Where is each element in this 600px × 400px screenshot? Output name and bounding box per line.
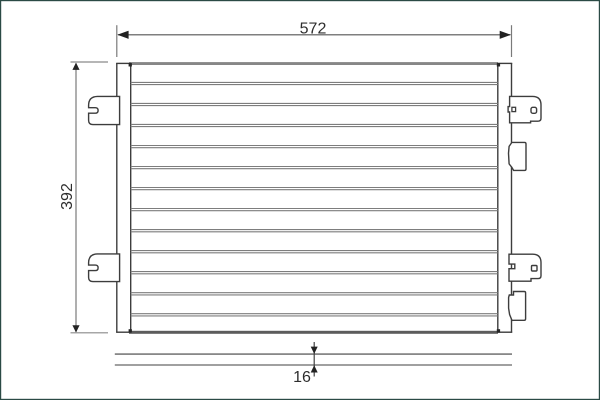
svg-text:392: 392 bbox=[59, 183, 76, 210]
svg-text:16: 16 bbox=[293, 369, 311, 386]
svg-text:572: 572 bbox=[300, 21, 327, 38]
